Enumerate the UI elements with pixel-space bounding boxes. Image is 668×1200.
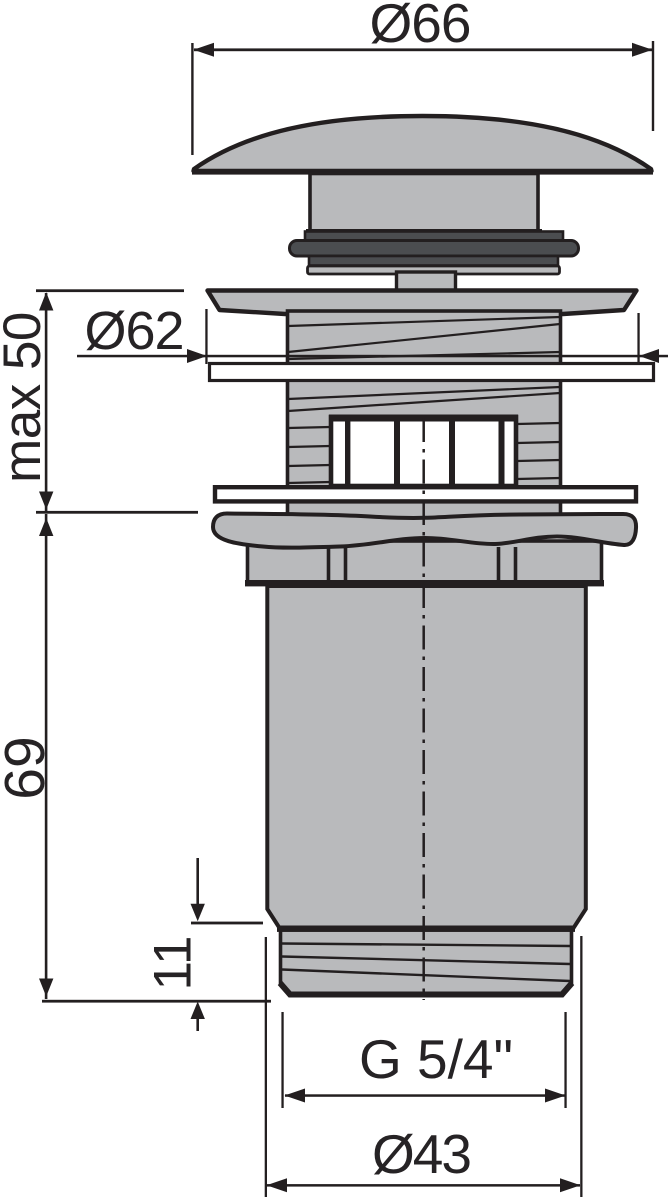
svg-text:max 50: max 50 — [0, 312, 52, 483]
svg-text:Ø62: Ø62 — [84, 301, 183, 361]
svg-text:11: 11 — [144, 935, 203, 990]
svg-text:Ø43: Ø43 — [372, 1123, 470, 1185]
svg-text:Ø66: Ø66 — [370, 0, 471, 54]
svg-text:G 5/4": G 5/4" — [359, 1028, 513, 1090]
svg-text:69: 69 — [0, 736, 57, 799]
